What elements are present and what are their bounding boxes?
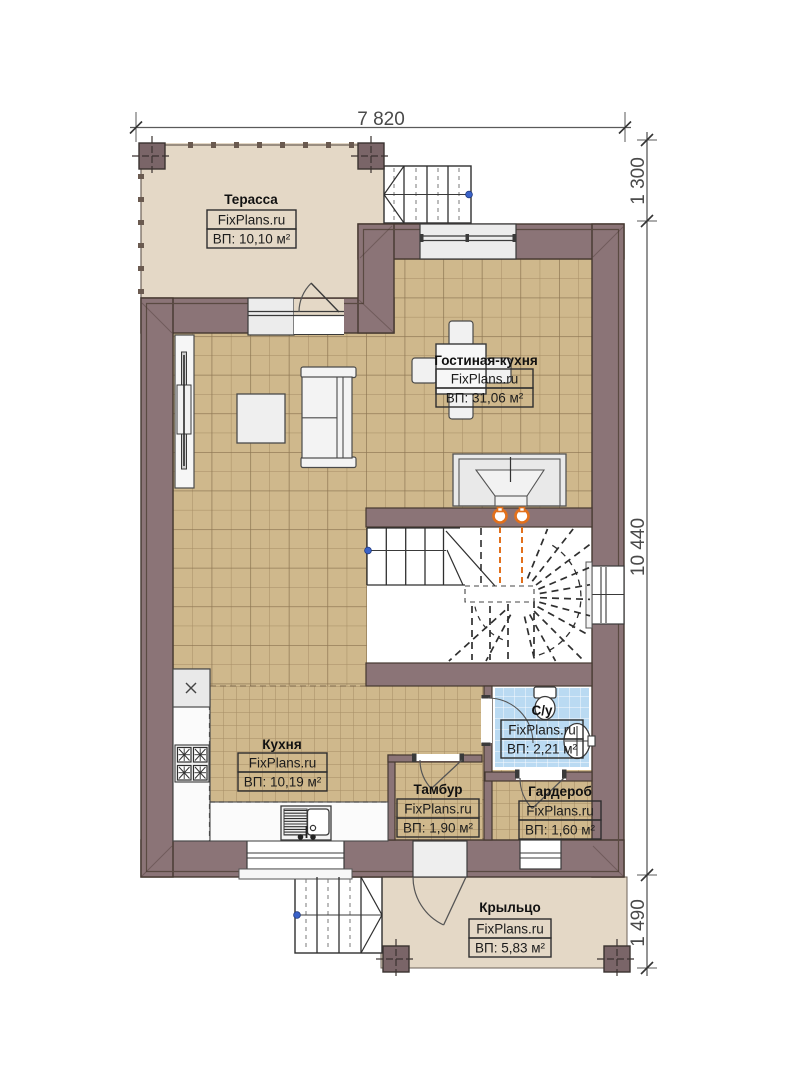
svg-text:1 490: 1 490 (628, 899, 649, 947)
svg-text:ВП: 31,06 м²: ВП: 31,06 м² (446, 391, 524, 406)
svg-text:1 300: 1 300 (628, 157, 649, 205)
svg-text:Гостиная-кухня: Гостиная-кухня (434, 353, 537, 368)
svg-text:Тамбур: Тамбур (414, 782, 463, 797)
svg-text:FixPlans.ru: FixPlans.ru (404, 802, 472, 817)
svg-text:ВП: 5,83 м²: ВП: 5,83 м² (475, 941, 546, 956)
svg-text:7 820: 7 820 (357, 109, 405, 130)
svg-text:ВП: 10,19 м²: ВП: 10,19 м² (244, 775, 322, 790)
svg-text:Кухня: Кухня (262, 737, 301, 752)
svg-text:FixPlans.ru: FixPlans.ru (218, 213, 286, 228)
svg-text:FixPlans.ru: FixPlans.ru (526, 804, 594, 819)
svg-text:FixPlans.ru: FixPlans.ru (508, 723, 576, 738)
svg-text:FixPlans.ru: FixPlans.ru (476, 922, 544, 937)
svg-text:Гардероб: Гардероб (528, 784, 592, 799)
svg-text:FixPlans.ru: FixPlans.ru (249, 756, 317, 771)
svg-text:FixPlans.ru: FixPlans.ru (451, 372, 519, 387)
svg-text:ВП: 1,90 м²: ВП: 1,90 м² (403, 821, 474, 836)
svg-text:С/у: С/у (531, 703, 553, 718)
svg-text:Терасса: Терасса (224, 192, 278, 207)
svg-text:10 440: 10 440 (628, 518, 649, 576)
svg-text:ВП: 2,21 м²: ВП: 2,21 м² (507, 742, 578, 757)
svg-text:ВП: 10,10 м²: ВП: 10,10 м² (213, 232, 291, 247)
svg-text:ВП: 1,60 м²: ВП: 1,60 м² (525, 823, 596, 838)
svg-text:Крыльцо: Крыльцо (479, 900, 540, 915)
